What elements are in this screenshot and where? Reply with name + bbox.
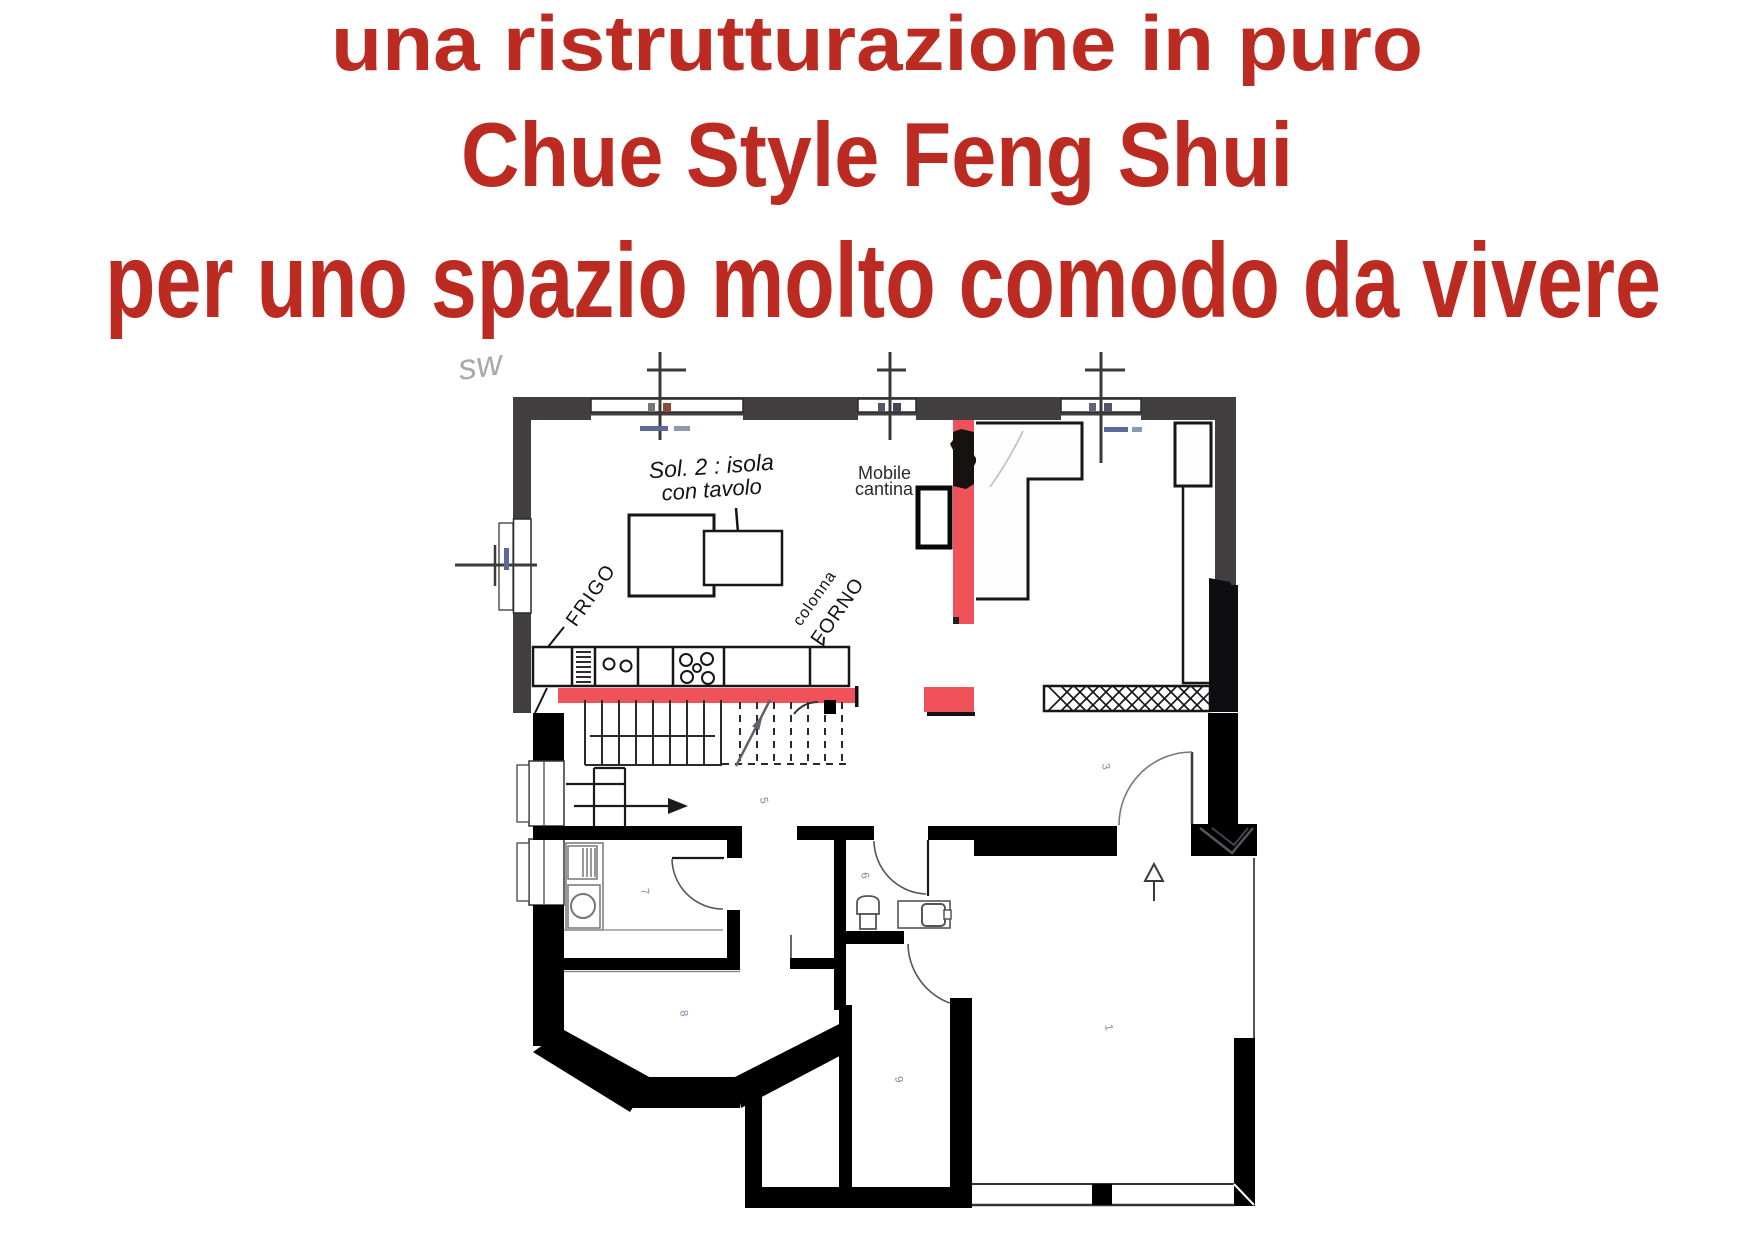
svg-text:una ristrutturazione in puro: una ristrutturazione in puro: [331, 0, 1423, 87]
svg-text:sw: sw: [455, 341, 506, 388]
svg-text:Chue Style Feng Shui: Chue Style Feng Shui: [461, 105, 1293, 206]
svg-text:cantina: cantina: [855, 479, 914, 499]
svg-text:per uno spazio molto comodo da: per uno spazio molto comodo da vivere: [105, 222, 1661, 340]
